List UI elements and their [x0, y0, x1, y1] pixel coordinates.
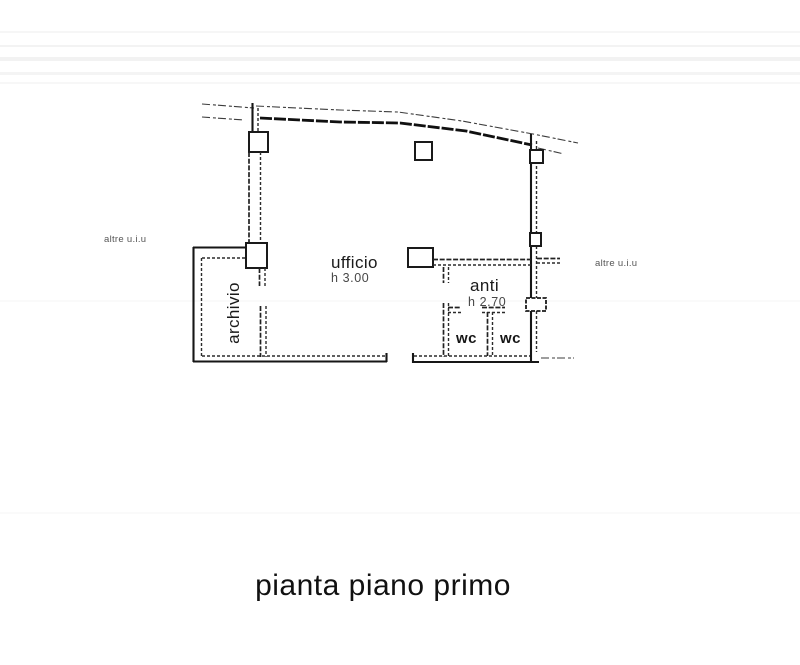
room-height-ufficio: h 3.00	[331, 271, 369, 285]
room-label-anti: anti	[470, 276, 499, 295]
scanned-floor-plan-page: ufficio h 3.00 archivio anti h 2.70 wc w…	[0, 0, 800, 665]
room-label-wc-right: wc	[499, 330, 521, 347]
room-height-anti: h 2.70	[468, 295, 506, 309]
adjacent-units-label-left: altre u.i.u	[104, 234, 146, 245]
room-label-ufficio: ufficio	[331, 253, 378, 272]
plan-title: pianta piano primo	[255, 569, 511, 602]
pillar-square	[246, 243, 267, 268]
room-label-wc-left: wc	[455, 330, 477, 347]
pillar-square	[249, 132, 268, 152]
pillar-square	[530, 150, 543, 163]
pillar-square	[408, 248, 433, 267]
floor-plan-drawing: ufficio h 3.00 archivio anti h 2.70 wc w…	[0, 0, 800, 665]
bottom-wall	[193, 353, 574, 362]
right-wall	[526, 134, 560, 361]
pillar-square	[530, 233, 541, 246]
column-marker	[415, 142, 432, 160]
door-opening-marker	[526, 298, 546, 311]
adjacent-units-label-right: altre u.i.u	[595, 258, 637, 269]
room-label-archivio: archivio	[224, 282, 243, 344]
left-wall	[246, 103, 268, 357]
